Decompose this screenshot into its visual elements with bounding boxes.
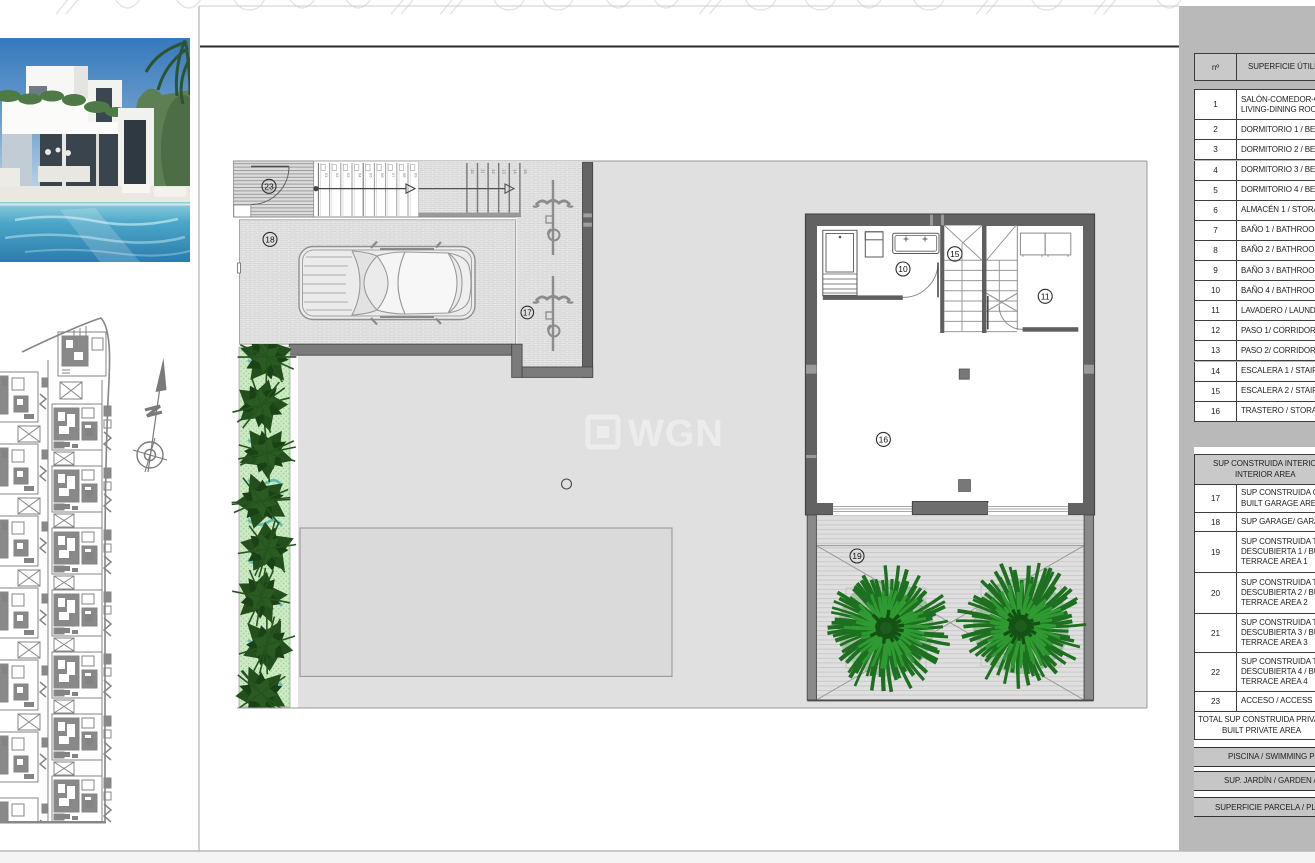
svg-text:WGN: WGN [628,413,724,455]
svg-text:08: 08 [402,173,407,178]
svg-text:15: 15 [523,169,528,174]
svg-text:01: 01 [324,173,329,178]
svg-text:04: 04 [357,173,362,178]
svg-text:06: 06 [380,173,385,178]
svg-text:07: 07 [391,173,396,178]
svg-text:02: 02 [335,173,340,178]
svg-text:05: 05 [369,173,374,178]
svg-text:12: 12 [491,169,496,174]
svg-text:10: 10 [898,264,908,274]
svg-text:03: 03 [346,173,351,178]
svg-text:19: 19 [852,551,862,561]
svg-text:11: 11 [1041,291,1050,301]
svg-text:14: 14 [512,169,517,174]
svg-text:18: 18 [265,234,275,244]
svg-text:13: 13 [502,169,507,174]
svg-text:11: 11 [481,169,486,174]
svg-text:17: 17 [523,308,532,317]
svg-text:15: 15 [950,249,960,259]
svg-text:10: 10 [470,169,475,174]
svg-text:09: 09 [413,173,418,178]
svg-text:23: 23 [264,181,274,191]
svg-text:16: 16 [879,434,889,444]
